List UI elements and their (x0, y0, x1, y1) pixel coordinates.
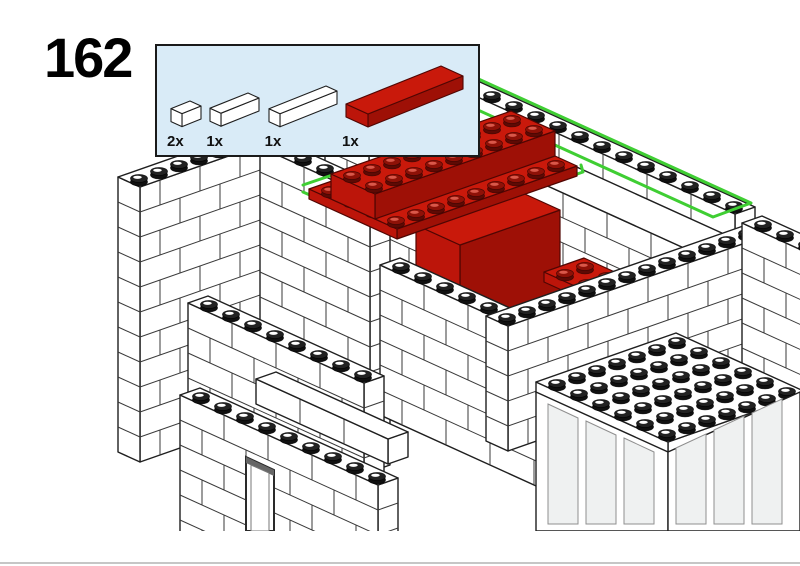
brick-1x6-icon (265, 82, 342, 133)
part-qty-label: 1x (265, 134, 282, 151)
page-footer-rule (0, 562, 800, 564)
part-qty-label: 1x (206, 134, 223, 151)
part-qty-label: 1x (342, 134, 359, 151)
part-item-brick-1x6: 1x (265, 82, 342, 150)
part-item-brick-1x2: 2x (167, 97, 206, 150)
instruction-page: 162 2x 1x 1x 1x (0, 0, 800, 566)
brick-1x4-icon (206, 89, 264, 132)
brick-1x2-icon (167, 97, 206, 133)
parts-callout-panel: 2x 1x 1x 1x (155, 44, 480, 157)
part-item-brick-2x10-red: 1x (342, 62, 468, 151)
brick-2x10-red-icon (342, 62, 468, 133)
part-item-brick-1x4: 1x (206, 89, 264, 150)
part-qty-label: 2x (167, 134, 184, 151)
